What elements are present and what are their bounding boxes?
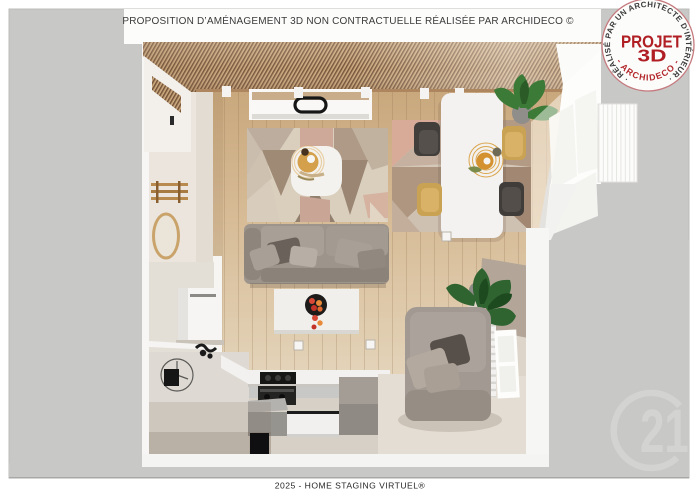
svg-text:3D: 3D xyxy=(638,46,667,66)
svg-text:2025 - HOME STAGING VIRTUEL®: 2025 - HOME STAGING VIRTUEL® xyxy=(275,481,426,491)
svg-text:21: 21 xyxy=(640,398,689,466)
svg-text:PROPOSITION D’AMÉNAGEMENT 3D N: PROPOSITION D’AMÉNAGEMENT 3D NON CONTRAC… xyxy=(122,14,574,27)
